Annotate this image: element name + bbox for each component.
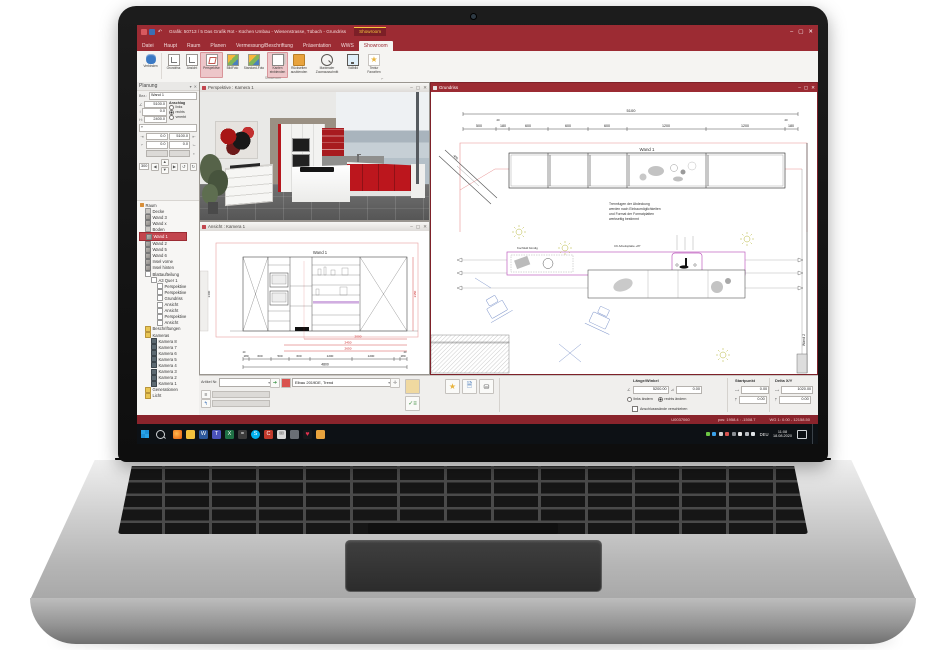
delta-x-field[interactable]: 1020.00 [781, 386, 813, 394]
camera-icon [151, 344, 157, 350]
view-icon [157, 308, 163, 314]
plan-caption-counter: CK Arbeitsplatte +87 [614, 244, 641, 248]
render-sideboard [225, 164, 273, 206]
teams-icon[interactable]: T [212, 430, 221, 439]
render-plant-pot [208, 202, 218, 214]
artikel-label: Artikel Nr. [201, 379, 217, 384]
field-right[interactable]: 5100.0 [169, 133, 191, 141]
folder-icon [145, 332, 151, 338]
clock[interactable]: 11:08 18.08.2020 [773, 430, 792, 439]
dim-label: 1200 [368, 354, 375, 358]
word-icon[interactable]: W [199, 430, 208, 439]
startpunkt-label: Startpunkt [735, 378, 755, 383]
render-red-shelf [322, 128, 344, 156]
render-painting [215, 121, 258, 159]
ansicht-button[interactable]: Ansicht [183, 52, 201, 78]
dim-label: 500 [277, 354, 282, 358]
plan-right-wall-label: Wand 2 [802, 334, 806, 346]
dim-label: 20 [784, 118, 788, 122]
bildfoto-button[interactable]: BildFoto [223, 52, 242, 78]
perspektive-window: Perspektive : Kamera 1 – ▢ ✕ [199, 82, 430, 221]
system-tray: DEU 11:08 18.08.2020 [706, 424, 815, 444]
spacebar-key [368, 523, 558, 534]
elevation-wall-label: Wand 1 [313, 250, 328, 255]
max-zoom-button[interactable]: Maximaler Zoomausschnitt [311, 52, 343, 78]
camera-icon [151, 375, 157, 381]
tray-battery-icon[interactable] [738, 432, 742, 436]
dim-label: 1200 [327, 354, 334, 358]
floor-plan-drawing[interactable]: 5100 500 20 180 600 600 600 1200 [431, 92, 817, 374]
skype-icon[interactable]: S [251, 430, 260, 439]
close-button[interactable]: ✕ [808, 29, 813, 35]
offset-icon: ↕ [139, 109, 141, 114]
ribbon-tab-row: Datei Haupt Raum Planen Vermessung/Besch… [137, 38, 818, 51]
status-bar: U0037060 pos: 1958.4 : -1508.7 WG 1: 0.0… [137, 415, 818, 424]
wall-type-dropdown[interactable]: ▾ [139, 124, 197, 132]
elevation-right-dim: 2350 [413, 290, 417, 297]
view-icon [433, 86, 437, 90]
links-aendern-radio[interactable]: links ändern [627, 397, 653, 402]
view-icon [157, 283, 163, 289]
ansicht-window-title: Ansicht : Kamera 1 [208, 224, 245, 229]
view-icon [202, 225, 206, 229]
render-cooktop [300, 167, 334, 172]
dim-label: 180 [500, 124, 506, 128]
laenge-field[interactable]: 5200.00 [633, 386, 669, 394]
y-coord-icon: ⤒ [735, 397, 737, 402]
view-icon [157, 289, 163, 295]
titlebar: ↶ Grafik: 50713 / 5 Das Grafik Rot - Küc… [137, 25, 818, 38]
move-down-button[interactable]: ▼ [161, 167, 169, 174]
floor-icon [145, 226, 151, 232]
heart-app-icon[interactable]: ♥ [303, 430, 312, 439]
anschlusswaende-checkbox[interactable]: Anschlusswände verschieben [632, 406, 687, 412]
search-icon[interactable] [156, 430, 165, 439]
render-oven [292, 138, 310, 152]
tree-item-wand-1[interactable]: Wand 1 [139, 232, 187, 240]
render-oven [292, 154, 310, 168]
ceiling-icon [145, 208, 151, 214]
offset-input[interactable]: 0.0 [142, 108, 167, 116]
dim-label: 600 [565, 124, 571, 128]
field-left[interactable]: 0.0 [146, 133, 168, 141]
firefox-icon[interactable] [173, 430, 182, 439]
maximize-icon[interactable]: ▢ [416, 85, 420, 91]
minimize-icon[interactable]: – [410, 85, 413, 91]
move-right-button[interactable]: ▶ [171, 163, 178, 171]
ribbon-group-label: Showroom [161, 76, 385, 80]
standard-foto-button[interactable]: Standard-Foto [241, 52, 267, 78]
verbinden-button[interactable]: Verbinden [139, 52, 162, 78]
document-info-icon[interactable]: 🗎 [462, 379, 477, 394]
island-icon [145, 259, 151, 265]
status-position: pos: 1958.4 : -1508.7 [718, 417, 756, 422]
angle-icon: ∠ [139, 102, 143, 107]
progress-field-2 [212, 400, 270, 407]
pin-icon[interactable]: ▾ [190, 84, 192, 89]
delta-label: Delta X/Y [775, 378, 792, 383]
corner-icon: ⌙ [191, 142, 197, 147]
render-window-mullion [416, 92, 419, 184]
tab-haupt[interactable]: Haupt [159, 41, 182, 51]
dx-icon: ⤏ [775, 387, 779, 392]
start-x-field[interactable]: 0.00 [741, 386, 769, 394]
island-icon [145, 265, 151, 271]
plan-total-dim: 5100 [627, 108, 637, 113]
windows-taskbar: W T X = S C ✉ ♥ DEU 11:08 18.08.2020 [137, 424, 818, 444]
context-tab-chip[interactable]: Showroom [354, 27, 386, 36]
dim-label: 600 [296, 354, 301, 358]
list-button[interactable]: ≡ [201, 390, 211, 399]
backside-icon [293, 54, 305, 66]
view-icon [157, 320, 163, 326]
wall-icon [146, 234, 152, 240]
sheet-icon [151, 277, 157, 283]
dim-label: 500 [476, 124, 482, 128]
close-panel-icon[interactable]: ✕ [194, 84, 197, 89]
view-icon [157, 302, 163, 308]
tab-praesentation[interactable]: Präsentation [298, 41, 336, 51]
project-tree: Raum Decke Wand 3 Wand x Boden Wand 1 Wa… [137, 200, 199, 415]
dim-label: 180 [788, 124, 794, 128]
artikel-input[interactable]: ▾ [219, 378, 273, 387]
disabled-field-2 [169, 150, 191, 158]
rueckseiten-button[interactable]: Rückseiten ausblenden [287, 52, 311, 78]
photo-icon [248, 54, 260, 66]
reply-button[interactable]: ↰ [201, 399, 211, 408]
dim-label: 600 [257, 354, 262, 358]
start-y-field[interactable]: 0.00 [739, 396, 767, 404]
plan-note-line: werden nach Einbaumöglichkeiten [609, 207, 661, 211]
plan-diagonal-dim: 400 [452, 154, 459, 161]
catalog-dropdown[interactable]: Elbau 2019DE, Trend▾ [292, 378, 393, 387]
laenge-input[interactable]: 5100.0 [144, 101, 167, 109]
maximize-icon[interactable]: ▢ [804, 85, 808, 91]
dialog-launcher-icon[interactable]: ⌐ [381, 76, 383, 81]
maximize-button[interactable]: ▢ [798, 29, 803, 35]
dim-label: 600 [525, 124, 531, 128]
dim-label: 20 [404, 351, 407, 354]
maximize-icon[interactable]: ▢ [416, 224, 420, 230]
mail-icon[interactable]: ✉ [277, 430, 286, 439]
laptop-trackpad [345, 540, 602, 592]
plan-note-line: Trennfugen der Abdeckung [609, 202, 650, 206]
laptop-keyboard [118, 466, 808, 534]
perspective-icon [206, 54, 218, 66]
anschlag-vererbt-radio[interactable]: vererbt [169, 115, 197, 120]
dim-label: 600 [604, 124, 610, 128]
pin-button[interactable]: ✛ [390, 378, 400, 388]
minimize-button[interactable]: – [790, 29, 793, 35]
camera-icon [151, 338, 157, 344]
elevation-drawing[interactable]: 2400 [200, 231, 429, 374]
magnifier-icon [321, 54, 333, 66]
language-indicator[interactable]: DEU [760, 432, 769, 437]
show-desktop-button[interactable] [812, 424, 815, 444]
camera-icon [151, 362, 157, 368]
checklist-icon[interactable]: ✓≡ [405, 396, 420, 411]
settings-icon[interactable] [290, 430, 299, 439]
render-plant [202, 184, 218, 204]
tab-raum[interactable]: Raum [182, 41, 205, 51]
dim-label: 20 [496, 118, 500, 122]
shopping-cart-icon[interactable]: ⛁ [479, 379, 494, 394]
bez-label: Bez.: [139, 94, 148, 98]
elevation-left-dim: 2400 [207, 290, 211, 297]
render-faucet [357, 154, 359, 162]
app-logo-icon [141, 29, 147, 35]
undo-icon[interactable]: ↶ [157, 29, 163, 35]
folder-icon [145, 387, 151, 393]
view-icon [157, 314, 163, 320]
dy-icon: ⤒ [775, 397, 777, 402]
rotate-cw-button[interactable]: ↻ [190, 163, 197, 171]
tray-volume-icon[interactable] [751, 432, 755, 436]
perspektive-window-title: Perspektive : Kamera 1 [208, 85, 254, 90]
start-button[interactable] [141, 430, 149, 438]
length-icon: ∠ [627, 387, 631, 392]
perspektive-button[interactable]: Perspektive [200, 52, 223, 78]
wall-icon [145, 253, 151, 259]
height-label: H: [139, 117, 143, 122]
elevation-red-dim: 2000 [355, 335, 362, 339]
panel-title: Planung [139, 83, 157, 89]
apply-arrow-button[interactable]: ➔ [270, 378, 280, 388]
vollbild-button[interactable]: Vollbild [343, 52, 363, 78]
close-icon[interactable]: ✕ [423, 224, 427, 230]
save-icon[interactable] [149, 29, 155, 35]
move-up-button[interactable]: ▲ [161, 159, 169, 166]
quick-access-toolbar: ↶ [141, 29, 163, 35]
tab-datei[interactable]: Datei [137, 41, 159, 51]
carat-app-icon[interactable]: C [264, 430, 273, 439]
wall-icon [145, 241, 151, 247]
view-icon [202, 86, 206, 90]
elevation-red-dim: 2650 [345, 347, 352, 351]
x-coord-icon: ⤏ [735, 387, 739, 392]
tray-shield-icon[interactable] [706, 432, 710, 436]
status-wg: WG 1: 0.00 - 12158.50 [770, 417, 810, 422]
move-left-button[interactable]: ◀ [151, 163, 158, 171]
dim-label: 1200 [741, 124, 749, 128]
room-icon [140, 203, 144, 207]
tree-item-licht[interactable]: Licht [139, 393, 199, 399]
plan-note-line: werkseitig bestimmt [609, 217, 639, 221]
kitchen-render[interactable] [200, 92, 429, 220]
elevation-total-dim: 4800 [321, 363, 329, 367]
save-order-icon[interactable] [405, 379, 420, 394]
tray-icon[interactable] [732, 432, 736, 436]
folder-icon [145, 326, 151, 332]
close-icon[interactable]: ✕ [811, 85, 815, 91]
wall-icon [145, 247, 151, 253]
favorites-star-icon[interactable]: ★ [445, 379, 460, 394]
render-red-cabinets [347, 162, 413, 196]
link-icon [146, 54, 156, 64]
winkel-field[interactable]: 0.00 [676, 386, 702, 394]
tab-wws[interactable]: WWS [336, 41, 359, 51]
ansicht-window: Ansicht : Kamera 1 – ▢ ✕ 2400 [199, 221, 430, 375]
plan-note-line: und Format der Formatplatten [609, 212, 654, 216]
delta-y-field[interactable]: 0.00 [779, 396, 811, 404]
dim-label: 180 [400, 354, 405, 358]
lock-icon: ▪ [191, 151, 197, 156]
dim-label: 180 [243, 354, 248, 358]
folder-app-icon[interactable] [316, 430, 325, 439]
laptop-front-edge [30, 598, 916, 644]
sheet-icon [145, 271, 151, 277]
photo-icon [227, 54, 239, 66]
disabled-field-1 [146, 150, 168, 158]
explorer-icon[interactable] [186, 430, 195, 439]
wall-icon [145, 214, 151, 220]
floorplan-icon [168, 54, 180, 66]
field-bottom[interactable]: 0.0 [169, 141, 191, 149]
grundriss-window: Grundriss – ▢ ✕ [430, 82, 818, 375]
tray-icon[interactable] [719, 432, 723, 436]
wall-icon [145, 220, 151, 226]
right-offset-icon: ⇤ [191, 134, 197, 139]
tray-network-icon[interactable] [745, 432, 749, 436]
plan-wall-label: Wand 1 [640, 147, 656, 152]
tray-cloud-icon[interactable] [712, 432, 716, 436]
grundriss-window-title: Grundriss [439, 85, 458, 90]
camera-icon [151, 369, 157, 375]
kanten-einblenden-button[interactable]: Kanten einblenden [267, 52, 288, 78]
edges-cube-icon [272, 54, 284, 66]
camera-icon [151, 356, 157, 362]
bottom-toolbar: Artikel Nr. ▾ ➔ Elbau 2019DE, Trend▾ ✛ ≡… [199, 375, 818, 416]
window-title: Grafik: 50713 / 5 Das Grafik Rot - Küche… [169, 29, 346, 34]
field-top[interactable]: 0.0 [146, 141, 168, 149]
ribbon: Verbinden Grundriss Ansicht Perspektive … [137, 51, 818, 83]
step-input[interactable]: 300 [139, 163, 149, 171]
calculator-icon[interactable]: = [238, 430, 247, 439]
bez-input[interactable]: Wand 1 [149, 92, 197, 100]
monitor-icon [347, 54, 359, 66]
tray-icon[interactable] [725, 432, 729, 436]
laenge-winkel-label: Länge/Winkel [633, 378, 659, 383]
camera-icon [151, 381, 157, 387]
camera-icon [151, 350, 157, 356]
close-icon[interactable]: ✕ [423, 85, 427, 91]
elevation-icon [186, 54, 198, 66]
textur-favoriten-button[interactable]: ★ Textur Favoriten [363, 52, 385, 78]
excel-icon[interactable]: X [225, 430, 234, 439]
hoehe-input[interactable]: 2400.0 [144, 116, 167, 124]
plan-caption-hob: Kochfeld bündig [517, 246, 538, 250]
tab-showroom[interactable]: Showroom [359, 41, 393, 51]
angle-icon: ⊿ [671, 387, 674, 392]
webcam [470, 13, 477, 20]
minimize-icon[interactable]: – [798, 85, 801, 91]
view-icon [157, 295, 163, 301]
planung-panel: Planung ▾ ✕ Bez.: Wand 1 ∠ 5100.0 ↕ 0.0 … [137, 82, 200, 415]
folder-icon [145, 393, 151, 399]
minimize-icon[interactable]: – [410, 224, 413, 230]
left-offset-icon: ⇥ [139, 134, 145, 139]
rotate-ccw-button[interactable]: ↺ [180, 163, 187, 171]
dim-label: 1200 [662, 124, 670, 128]
catalog-icon-button[interactable] [281, 378, 291, 388]
action-center-icon[interactable] [797, 430, 807, 439]
app-window: ↶ Grafik: 50713 / 5 Das Grafik Rot - Küc… [137, 25, 818, 444]
top-offset-icon: ⌐ [139, 142, 145, 147]
anschlag-label: Anschlag [169, 101, 197, 105]
progress-field-1 [212, 391, 270, 398]
rechts-aendern-radio[interactable]: rechts ändern [658, 397, 686, 402]
tab-vermessung[interactable]: Vermessung/Beschriftung [231, 41, 298, 51]
laptop-base [30, 458, 916, 644]
mdi-area: Perspektive : Kamera 1 – ▢ ✕ [199, 82, 818, 375]
elevation-red-dim: 2450 [345, 341, 352, 345]
star-icon: ★ [368, 54, 380, 66]
sofa-sketch [431, 342, 509, 373]
grundriss-button[interactable]: Grundriss [163, 52, 184, 78]
tab-planen[interactable]: Planen [205, 41, 231, 51]
status-user-id: U0037060 [671, 417, 689, 422]
